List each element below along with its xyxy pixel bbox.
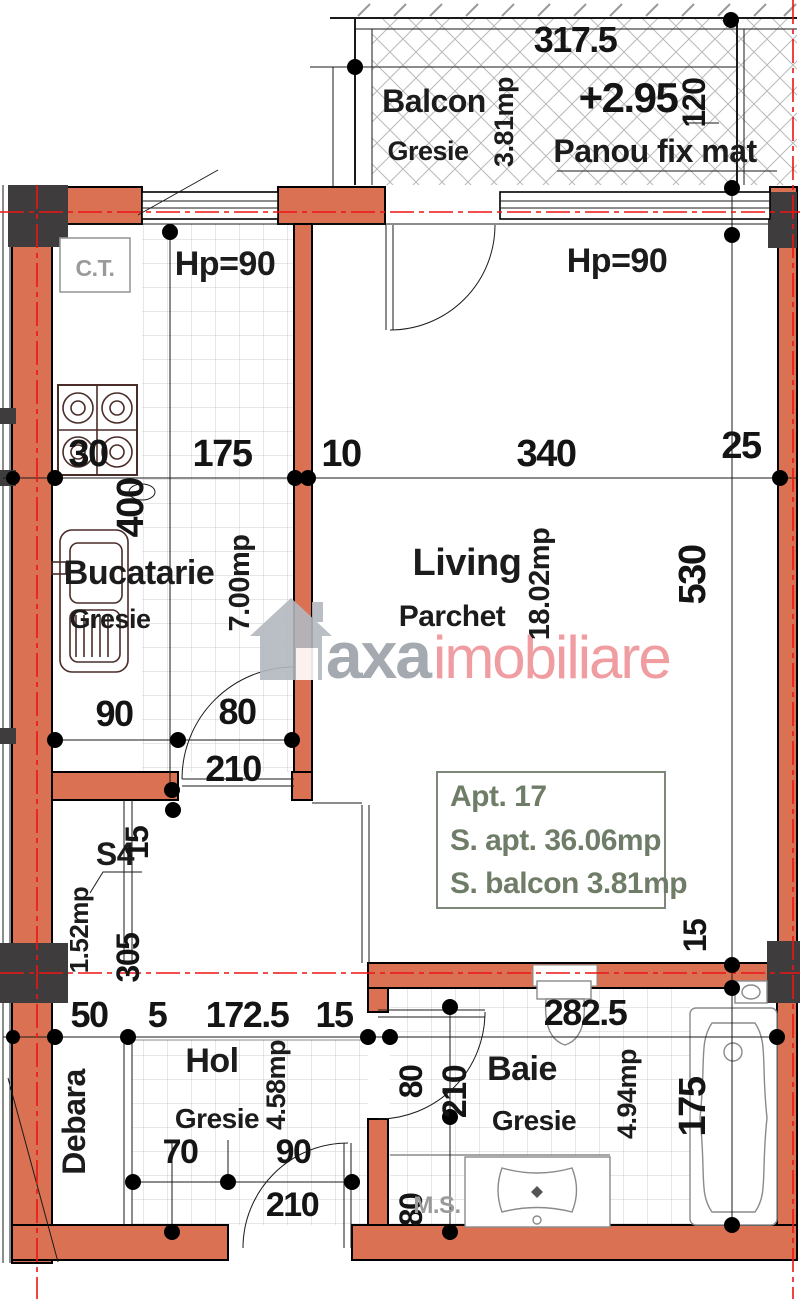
dim-400: 400 [110,478,152,537]
hall-area-label: 4.58mp [261,1040,291,1130]
dim-175: 175 [193,433,253,475]
dim-340: 340 [517,433,576,475]
storage-title: Debara [56,1069,92,1175]
dim-305: 305 [110,933,146,983]
dim-kitchen-door-w: 80 [218,691,256,732]
balcony-door [386,225,495,330]
dim-15: 15 [315,994,354,1035]
floor-plan-page: axa imobiliare Apt. 17 S. apt. 36.06mp S… [0,0,800,1299]
dim-balcony-width: 317.5 [534,19,618,60]
dim-kitchen-90: 90 [95,693,133,734]
info-line-apartment-area: S. apt. 36.06mp [450,824,661,857]
wall-right-lower [777,988,797,1260]
wall-hall-bath-upper [368,988,388,1012]
info-line-apartment: Apt. 17 [450,780,547,813]
living-window-label: Hp=90 [567,242,668,280]
dim-tub-175: 175 [672,1076,714,1136]
dim-kitchen-door-h: 210 [205,748,261,789]
wall-top-pier-mid [278,187,385,224]
balcony-panel-label: Panou fix mat [553,133,757,169]
wall-left [12,187,52,1263]
dim-entrance-h: 210 [266,1186,319,1224]
balcony-title: Balcon [382,83,486,119]
wall-kitchen-south-right [292,772,312,800]
corner-basin [735,981,767,1003]
wall-right-upper [778,224,797,965]
kitchen-window [142,192,278,219]
kitchen-sink [52,530,128,672]
dim-30: 30 [68,433,108,475]
washing-machine-label: M.S. [413,1192,460,1219]
dim-bath-door-h: 210 [436,1065,474,1118]
dim-70: 70 [163,1133,198,1171]
dim-entrance-w: 90 [276,1133,311,1171]
dim-10: 10 [321,433,361,475]
bath-title: Baie [487,1050,557,1088]
kitchen-floor-label: Gresie [69,604,151,634]
hall-floor-label: Gresie [175,1103,259,1134]
dim-25: 25 [721,425,762,467]
wall-kitchen-living [294,224,312,800]
info-line-balcony-area: S. balcon 3.81mp [450,867,687,900]
living-window [500,192,770,219]
apartment-info-box: Apt. 17 S. apt. 36.06mp S. balcon 3.81mp [437,772,687,908]
kitchen-floor-tiles [142,224,294,772]
dim-5: 5 [148,994,168,1035]
kitchen-area-label: 7.00mp [224,535,256,632]
wall-kitchen-south-left [52,772,178,800]
floor-plan-drawing: axa imobiliare Apt. 17 S. apt. 36.06mp S… [0,0,800,1299]
bath-area-label: 4.94mp [612,1049,642,1139]
wall-bottom-left [12,1225,228,1260]
wall-storage-hall [124,1040,132,1225]
kitchen-title: Bucatarie [64,554,214,592]
balcony-floor-label: Gresie [387,136,469,166]
balcony-level-label: +2.95 [579,74,679,121]
dim-50: 50 [70,994,108,1035]
living-floor-label: Parchet [399,600,506,633]
bath-floor-label: Gresie [492,1105,576,1136]
shaft-area-label: 1.52mp [64,887,94,974]
living-area-label: 18.02mp [524,528,556,641]
hall-title: Hol [185,1042,238,1080]
shaft-partition [124,800,369,963]
dim-shaft-15: 15 [119,826,155,859]
dim-282-5: 282.5 [544,992,628,1033]
living-title: Living [413,542,522,584]
dim-right-15: 15 [677,919,713,952]
boiler-label: C.T. [76,255,115,281]
dim-bath-door-w: 80 [393,1065,429,1098]
kitchen-window-label: Hp=90 [175,245,276,283]
dim-530: 530 [672,545,714,604]
dim-balcony-height: 120 [676,78,712,128]
wall-hall-bath-lower [368,1119,388,1225]
dim-172-5: 172.5 [206,994,290,1035]
balcony-area-label: 3.81mp [489,77,519,167]
